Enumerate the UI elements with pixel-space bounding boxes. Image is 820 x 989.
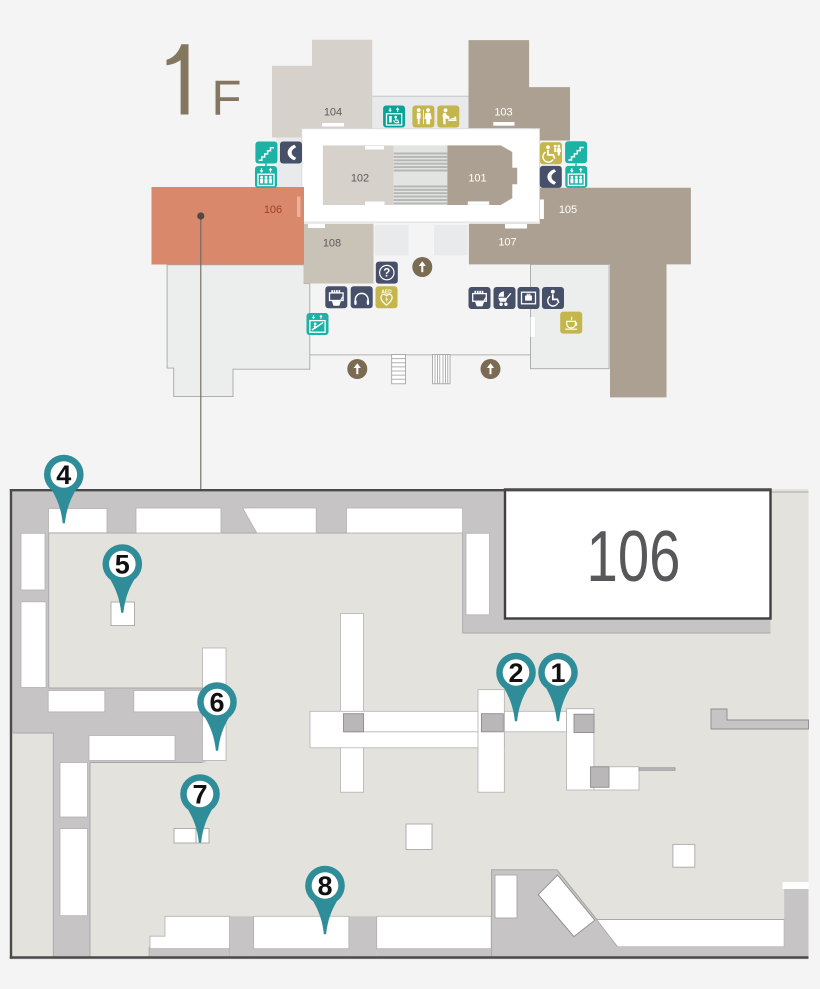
svg-text:5: 5 [115,550,130,580]
svg-text:2: 2 [508,658,523,688]
svg-text:6: 6 [209,688,224,718]
svg-text:1: 1 [550,658,565,688]
svg-text:105: 105 [559,204,577,216]
svg-text:8: 8 [317,871,332,901]
svg-text:4: 4 [56,460,71,490]
svg-text:106: 106 [587,517,681,597]
svg-text:7: 7 [192,780,207,810]
svg-text:103: 103 [494,107,512,119]
svg-text:104: 104 [324,107,342,119]
svg-text:F: F [212,72,242,126]
svg-text:106: 106 [264,204,282,216]
svg-text:101: 101 [468,173,486,185]
svg-text:102: 102 [351,173,369,185]
svg-text:108: 108 [323,238,341,250]
svg-text:107: 107 [498,237,516,249]
